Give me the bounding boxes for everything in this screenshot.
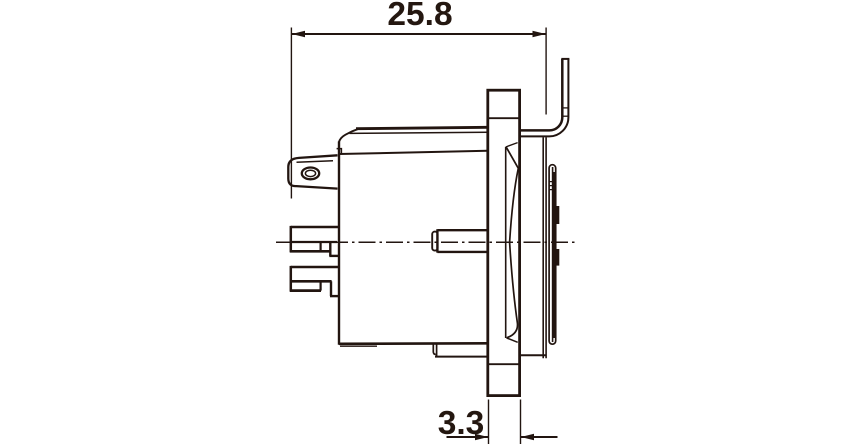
svg-text:25.8: 25.8 <box>387 0 452 33</box>
